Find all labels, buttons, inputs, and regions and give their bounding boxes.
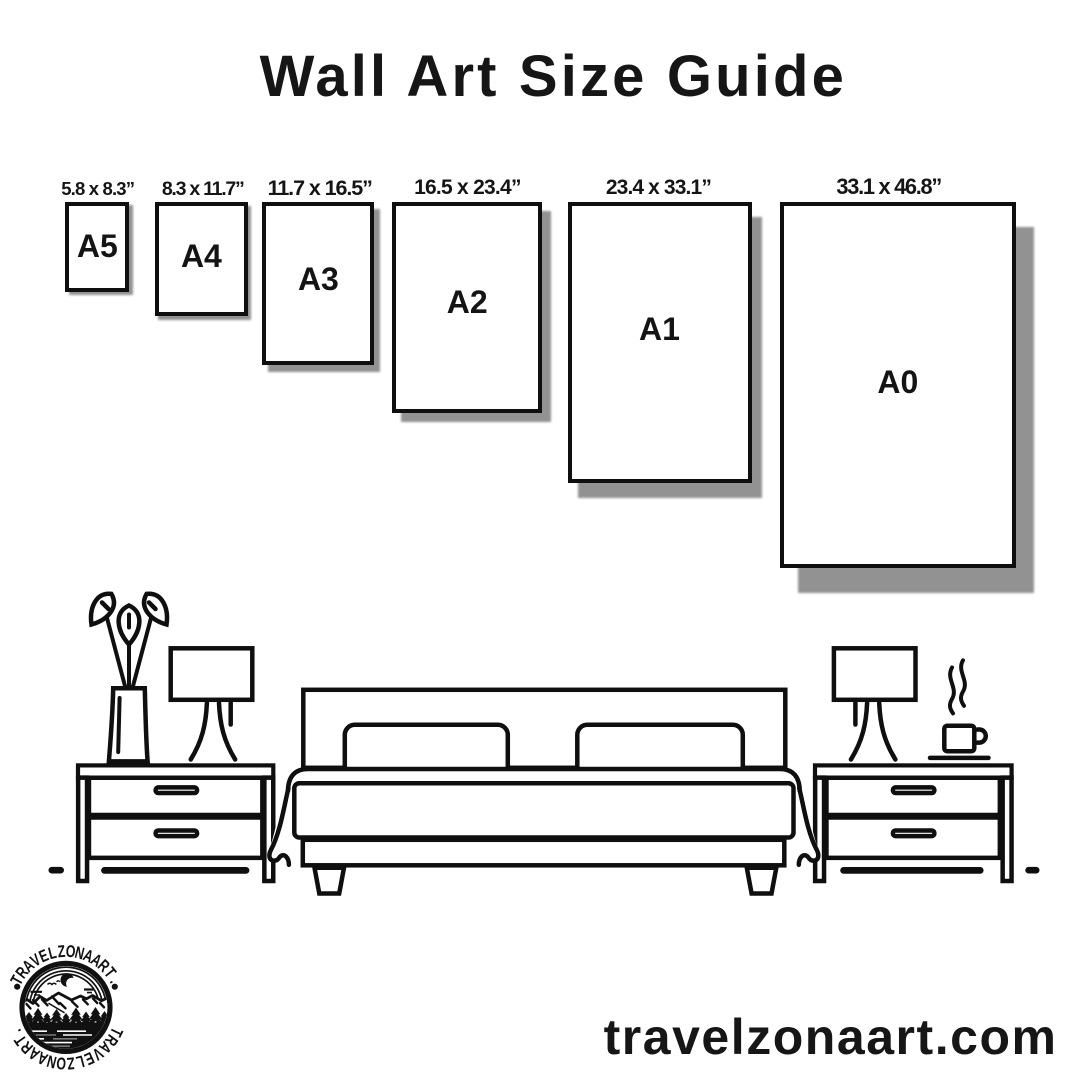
svg-text:Z: Z [66, 1053, 75, 1072]
